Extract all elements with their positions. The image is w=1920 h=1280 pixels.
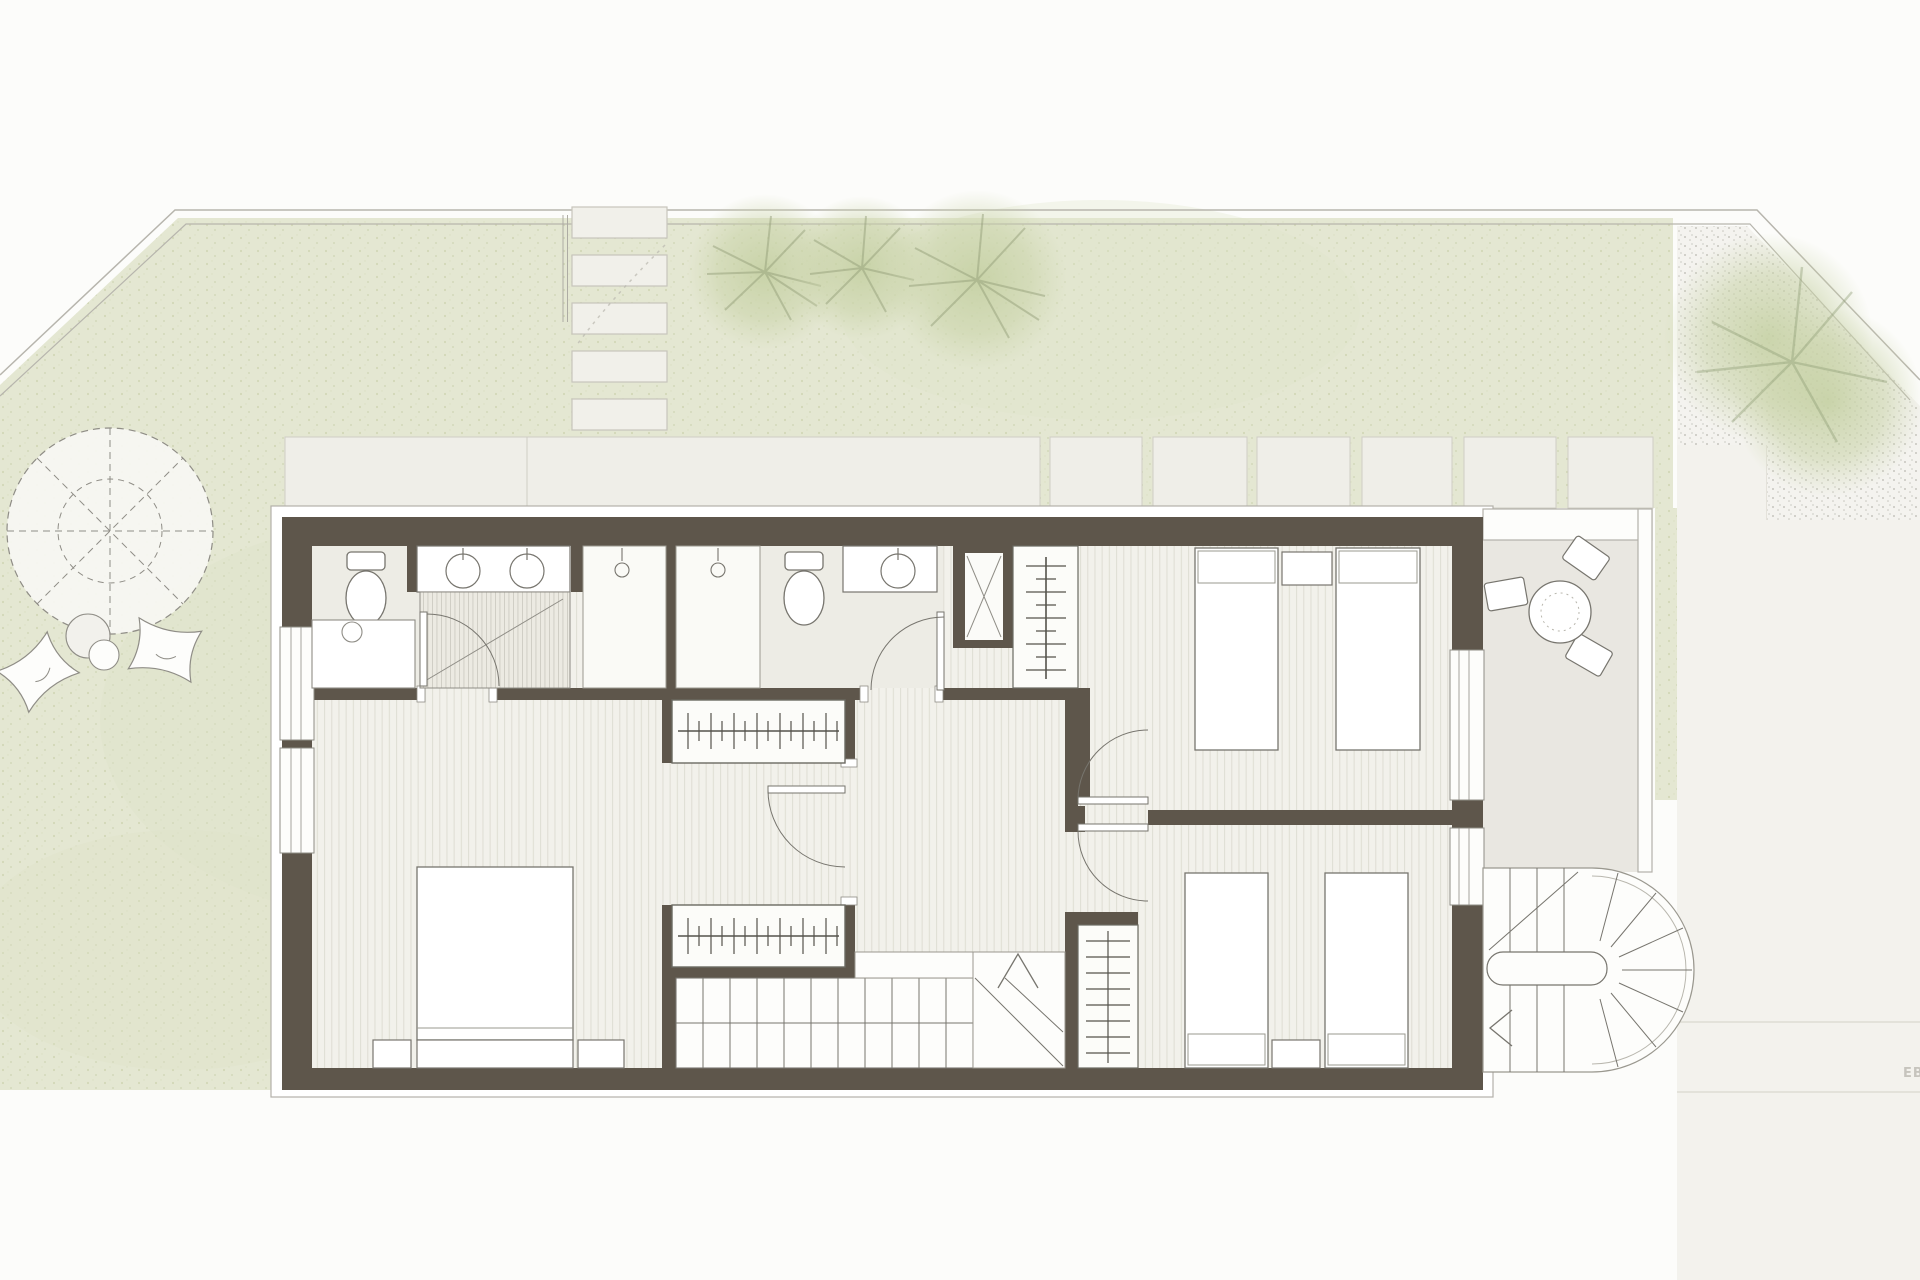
window-east: [1450, 650, 1484, 800]
vanity-counter: [417, 546, 570, 592]
stepping-stone: [572, 255, 667, 286]
washbasin-small: [342, 622, 362, 642]
window-west: [280, 748, 314, 853]
terrace-table: [1529, 581, 1591, 643]
paving-slab: [1153, 437, 1247, 508]
toilet-bowl: [784, 571, 824, 625]
partition-wall: [312, 688, 417, 700]
door-leaf: [768, 786, 845, 793]
partition-wall: [407, 546, 417, 592]
window-east: [1450, 828, 1484, 905]
nightstand: [578, 1040, 624, 1068]
partition-wall: [662, 978, 676, 1068]
paving-slab: [1568, 437, 1653, 508]
floor-plan-svg: [0, 0, 1920, 1280]
window-west: [280, 627, 314, 740]
terrace-parapet-east: [1638, 509, 1652, 872]
stepping-stone: [572, 207, 667, 238]
garden-pouf: [89, 640, 119, 670]
partition-wall: [571, 546, 583, 592]
paved-path: [285, 437, 1040, 508]
partition-wall: [937, 688, 1090, 700]
stepping-stone: [572, 399, 667, 430]
shower: [420, 592, 570, 688]
paving-slab: [1257, 437, 1350, 508]
door-leaf: [937, 612, 944, 690]
nightstand: [373, 1040, 411, 1068]
shower-drain: [711, 563, 725, 577]
watermark: EB: [1903, 1066, 1920, 1081]
door-leaf: [420, 612, 427, 686]
shower-drain: [615, 563, 629, 577]
terrace-chair: [1484, 577, 1528, 612]
bed-pillow: [1188, 1034, 1265, 1065]
toilet-cistern: [347, 552, 385, 570]
bed: [417, 867, 573, 1040]
vanity-cabinet: [312, 620, 415, 688]
floor-plan-page: EB: [0, 0, 1920, 1280]
bed-pillow: [1198, 551, 1275, 583]
lawn-strip-east: [1655, 508, 1677, 800]
stair-winder: [973, 952, 1065, 1068]
paving-slab: [1464, 437, 1556, 508]
toilet-bowl: [346, 571, 386, 625]
stepping-stone: [572, 351, 667, 382]
door-jamb: [860, 686, 868, 702]
nightstand: [1272, 1040, 1320, 1068]
bed-pillow: [1328, 1034, 1405, 1065]
bed-headboard: [417, 1040, 573, 1068]
stepping-stone: [572, 303, 667, 334]
partition-wall: [672, 967, 850, 978]
paving-slab: [1050, 437, 1142, 508]
partition-wall: [497, 688, 860, 700]
bed-pillow: [1339, 551, 1417, 583]
door-jamb: [841, 897, 857, 905]
terrace-parapet-north: [1483, 509, 1652, 540]
partition-wall: [1065, 912, 1138, 925]
driveway-pavement: [1677, 445, 1920, 1280]
spiral-stair-newel: [1487, 952, 1607, 985]
partition-wall: [1065, 700, 1078, 820]
partition-wall: [1065, 912, 1078, 1068]
nightstand: [1282, 552, 1332, 585]
tree-canopy: [1733, 307, 1920, 497]
door-leaf: [1078, 797, 1148, 804]
partition-wall: [1148, 810, 1452, 825]
stair-landing: [855, 952, 973, 978]
partition-wall: [666, 546, 676, 700]
door-leaf: [1078, 824, 1148, 831]
paving-slab: [1362, 437, 1452, 508]
toilet-cistern: [785, 552, 823, 570]
